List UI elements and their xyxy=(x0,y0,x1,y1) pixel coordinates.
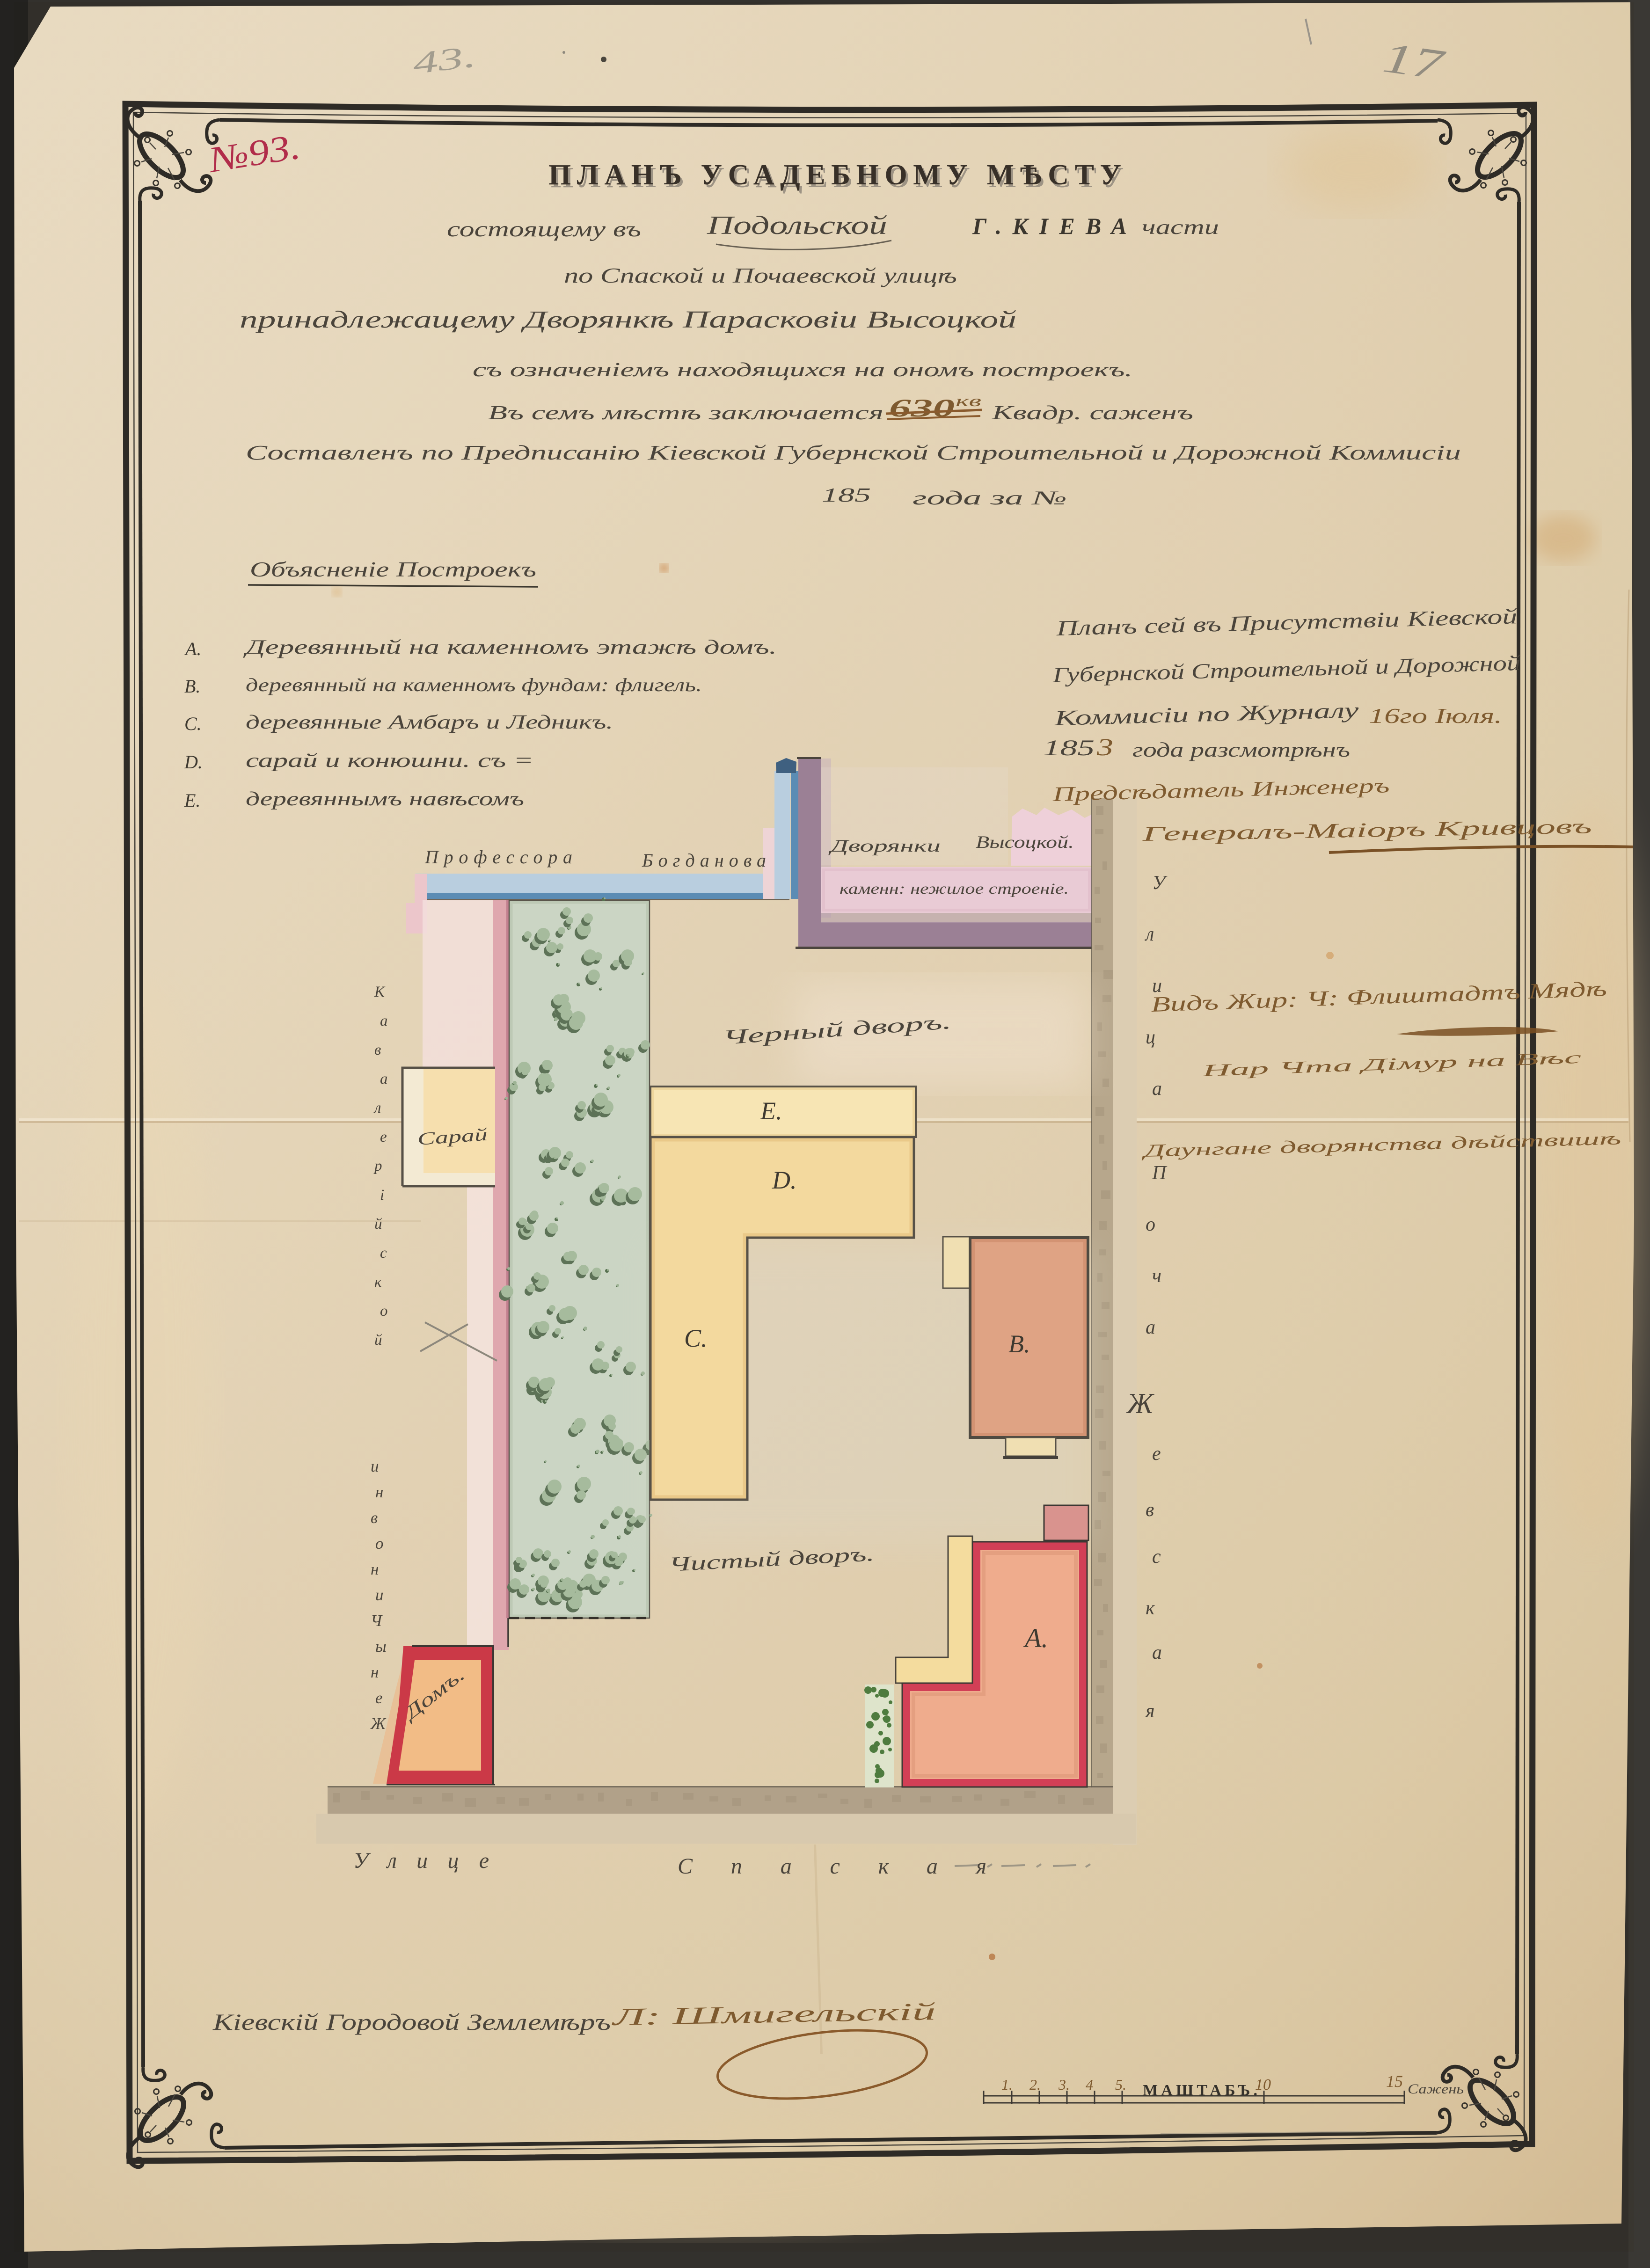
svg-text:кв: кв xyxy=(956,393,981,410)
svg-text:D.: D. xyxy=(772,1166,797,1194)
svg-text:Л: Шмигельскій: Л: Шмигельскій xyxy=(611,1998,936,2031)
svg-text:принадлежащему Дворянкѣ Параск: принадлежащему Дворянкѣ Парасковіи Высоц… xyxy=(240,306,1016,333)
svg-text:а: а xyxy=(1152,1078,1162,1100)
svg-text:с: с xyxy=(380,1245,387,1262)
svg-text:Составленъ по Предписанію Кіев: Составленъ по Предписанію Кіевской Губер… xyxy=(246,441,1461,464)
svg-text:П: П xyxy=(1152,1162,1168,1184)
svg-text:и: и xyxy=(375,1586,384,1604)
svg-text:л: л xyxy=(1145,924,1154,945)
svg-text:е: е xyxy=(375,1689,383,1707)
svg-text:E.: E. xyxy=(184,790,200,811)
svg-text:3: 3 xyxy=(1096,734,1113,761)
svg-text:а: а xyxy=(380,1071,388,1087)
svg-text:17: 17 xyxy=(1380,33,1448,89)
svg-text:Сажень: Сажень xyxy=(1408,2081,1464,2097)
svg-text:B.: B. xyxy=(184,676,200,697)
svg-text:съ означеніемъ находящихся на: съ означеніемъ находящихся на ономъ пост… xyxy=(473,359,1132,381)
svg-text:5.: 5. xyxy=(1115,2076,1126,2093)
svg-text:A.: A. xyxy=(184,638,201,659)
svg-text:ПЛАНЪ УСАДЕБНОМУ МѢСТУ: ПЛАНЪ УСАДЕБНОМУ МѢСТУ xyxy=(548,159,1125,191)
svg-text:а: а xyxy=(380,1013,388,1029)
svg-text:Ж: Ж xyxy=(370,1714,387,1733)
svg-text:C.: C. xyxy=(184,713,202,734)
svg-text:а: а xyxy=(1152,1642,1162,1663)
svg-text:в: в xyxy=(371,1509,378,1527)
svg-text:л: л xyxy=(373,1100,381,1116)
svg-text:15: 15 xyxy=(1386,2072,1403,2091)
svg-text:н: н xyxy=(375,1483,383,1501)
svg-text:і: і xyxy=(380,1187,384,1203)
svg-text:каменн: нежилое строеніе.: каменн: нежилое строеніе. xyxy=(840,881,1069,897)
svg-text:Въ семъ мѣстѣ заключается: Въ семъ мѣстѣ заключается xyxy=(488,402,883,424)
svg-text:деревянный на каменномъ фундам: деревянный на каменномъ фундам: флигель. xyxy=(246,674,702,695)
svg-text:года за №: года за № xyxy=(913,488,1067,509)
svg-text:р: р xyxy=(373,1158,382,1174)
svg-text:D.: D. xyxy=(184,751,203,773)
svg-text:части: части xyxy=(1142,216,1219,239)
svg-text:У: У xyxy=(1152,872,1168,894)
svg-text:й: й xyxy=(374,1332,382,1349)
svg-text:Объясненіе Построекъ: Объясненіе Построекъ xyxy=(250,557,536,581)
svg-text:C.: C. xyxy=(684,1324,708,1352)
svg-text:деревянные Амбаръ и Ледникъ.: деревянные Амбаръ и Ледникъ. xyxy=(246,712,613,733)
svg-text:ч: ч xyxy=(1152,1265,1161,1287)
svg-text:2.: 2. xyxy=(1029,2076,1041,2093)
svg-text:Высоцкой.: Высоцкой. xyxy=(976,833,1074,852)
svg-text:185: 185 xyxy=(822,485,871,506)
svg-text:ц: ц xyxy=(1146,1027,1155,1048)
svg-text:е: е xyxy=(380,1129,387,1145)
svg-text:о: о xyxy=(375,1534,384,1553)
svg-text:Кіевскій Городовой Землемѣръ: Кіевскій Городовой Землемѣръ xyxy=(212,2009,611,2035)
svg-text:E.: E. xyxy=(760,1097,782,1125)
svg-text:185: 185 xyxy=(1043,736,1095,760)
svg-text:я: я xyxy=(1145,1700,1155,1722)
svg-text:Профессора: Профессора xyxy=(424,846,572,868)
svg-text:о: о xyxy=(1146,1214,1155,1235)
svg-text:Ч: Ч xyxy=(371,1612,383,1630)
svg-text:Квадр. саженъ: Квадр. саженъ xyxy=(991,402,1193,424)
svg-text:к: к xyxy=(374,1274,382,1291)
svg-text:и: и xyxy=(371,1457,379,1475)
svg-text:10: 10 xyxy=(1255,2076,1271,2093)
svg-text:н: н xyxy=(371,1560,379,1578)
svg-text:к: к xyxy=(1146,1597,1155,1619)
svg-text:Дворянки: Дворянки xyxy=(828,837,941,856)
svg-text:B.: B. xyxy=(1008,1330,1030,1358)
svg-text:16го Іюля.: 16го Іюля. xyxy=(1369,704,1502,728)
svg-text:н: н xyxy=(371,1663,379,1681)
svg-text:года разсмотрѣнъ: года разсмотрѣнъ xyxy=(1132,738,1350,761)
svg-text:Богданова: Богданова xyxy=(642,850,766,871)
svg-text:о: о xyxy=(380,1303,388,1320)
svg-text:й: й xyxy=(374,1216,382,1232)
svg-text:по Спаской и Почаевской улицѣ: по Спаской и Почаевской улицѣ xyxy=(564,263,957,287)
svg-text:ы: ы xyxy=(375,1637,387,1655)
svg-text:Ж: Ж xyxy=(1126,1388,1155,1420)
svg-text:Деревянный на каменномъ этажѣ: Деревянный на каменномъ этажѣ домъ. xyxy=(243,636,777,658)
svg-text:сарай и конюшни. съ =: сарай и конюшни. съ = xyxy=(246,750,533,772)
svg-text:в: в xyxy=(1146,1499,1154,1521)
svg-text:4: 4 xyxy=(1086,2076,1093,2093)
svg-text:и: и xyxy=(1152,975,1162,997)
svg-text:е: е xyxy=(1152,1443,1161,1465)
svg-text:Подольской: Подольской xyxy=(707,211,887,240)
svg-text:состоящему въ: состоящему въ xyxy=(447,217,641,241)
svg-text:К: К xyxy=(374,984,386,1000)
svg-text:деревяннымъ навѣсомъ: деревяннымъ навѣсомъ xyxy=(246,788,524,810)
svg-text:с: с xyxy=(1152,1546,1161,1568)
svg-text:3.: 3. xyxy=(1058,2076,1070,2093)
svg-text:1.: 1. xyxy=(1001,2076,1013,2093)
svg-text:в: в xyxy=(374,1042,381,1058)
svg-text:а: а xyxy=(1146,1317,1155,1338)
svg-text:A.: A. xyxy=(1023,1623,1048,1653)
